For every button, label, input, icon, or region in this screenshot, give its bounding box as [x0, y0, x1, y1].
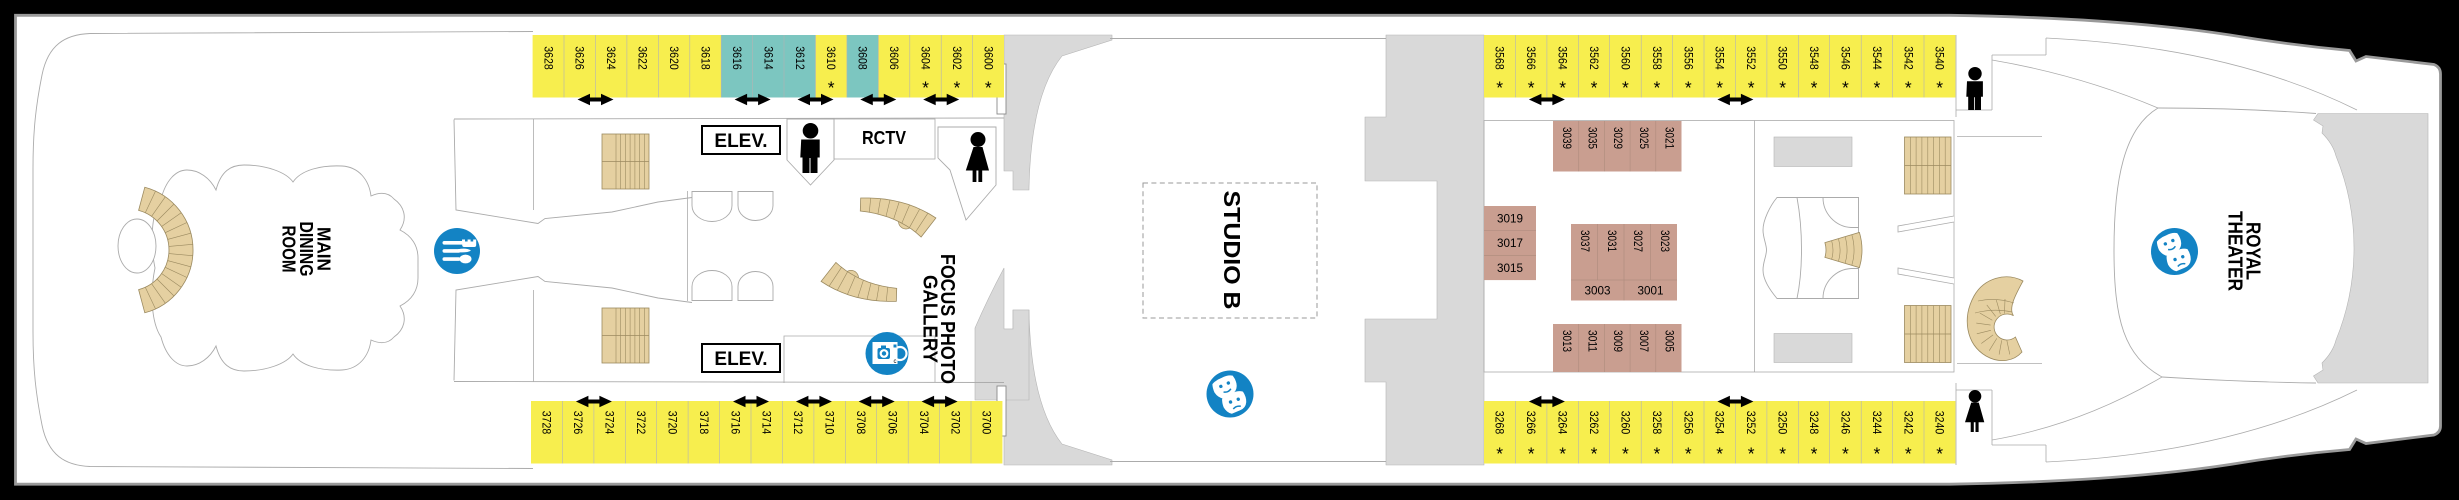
- svg-text:3706: 3706: [885, 411, 899, 435]
- svg-text:3618: 3618: [699, 46, 713, 70]
- svg-text:3610: 3610: [824, 46, 838, 70]
- svg-text:3025: 3025: [1637, 127, 1649, 149]
- svg-text:*: *: [1842, 78, 1849, 98]
- svg-text:*: *: [985, 78, 992, 98]
- svg-text:3021: 3021: [1663, 127, 1675, 149]
- svg-text:3712: 3712: [791, 411, 805, 435]
- svg-text:3250: 3250: [1776, 411, 1790, 435]
- svg-text:3614: 3614: [761, 46, 775, 70]
- svg-text:3029: 3029: [1611, 127, 1623, 149]
- svg-text:3568: 3568: [1493, 46, 1507, 70]
- svg-text:3254: 3254: [1713, 411, 1727, 435]
- svg-text:3252: 3252: [1744, 411, 1758, 435]
- svg-text:*: *: [1559, 444, 1566, 464]
- svg-text:ROOM: ROOM: [279, 226, 300, 273]
- svg-text:*: *: [1653, 444, 1660, 464]
- svg-text:3560: 3560: [1618, 46, 1632, 70]
- svg-text:3702: 3702: [948, 411, 962, 435]
- svg-text:3562: 3562: [1587, 46, 1601, 70]
- svg-text:3017: 3017: [1497, 236, 1523, 250]
- svg-text:*: *: [1779, 78, 1786, 98]
- svg-text:ELEV.: ELEV.: [714, 349, 767, 370]
- svg-text:*: *: [1873, 444, 1880, 464]
- svg-text:3031: 3031: [1605, 230, 1617, 252]
- svg-text:*: *: [922, 78, 929, 98]
- svg-text:3608: 3608: [856, 46, 870, 70]
- svg-text:3626: 3626: [573, 46, 587, 70]
- svg-text:3624: 3624: [604, 46, 618, 70]
- svg-text:3718: 3718: [697, 411, 711, 435]
- svg-text:3005: 3005: [1663, 330, 1675, 352]
- svg-text:3716: 3716: [728, 411, 742, 435]
- svg-text:3558: 3558: [1650, 46, 1664, 70]
- svg-text:*: *: [1496, 444, 1503, 464]
- svg-text:*: *: [1716, 78, 1723, 98]
- svg-text:*: *: [1842, 444, 1849, 464]
- svg-text:3708: 3708: [854, 411, 868, 435]
- svg-text:*: *: [1811, 78, 1818, 98]
- svg-text:3710: 3710: [823, 411, 837, 435]
- svg-text:3001: 3001: [1638, 283, 1664, 297]
- svg-text:3019: 3019: [1497, 211, 1523, 225]
- svg-text:3035: 3035: [1586, 127, 1598, 149]
- svg-text:*: *: [1936, 444, 1943, 464]
- svg-text:3039: 3039: [1560, 127, 1572, 149]
- svg-text:*: *: [1873, 78, 1880, 98]
- svg-text:3015: 3015: [1497, 261, 1523, 275]
- svg-text:3007: 3007: [1637, 330, 1649, 352]
- svg-text:*: *: [1905, 78, 1912, 98]
- svg-text:3256: 3256: [1681, 411, 1695, 435]
- svg-text:3724: 3724: [603, 411, 617, 435]
- svg-text:3037: 3037: [1578, 230, 1590, 252]
- svg-text:3003: 3003: [1585, 283, 1611, 297]
- svg-text:3704: 3704: [917, 411, 931, 435]
- svg-text:*: *: [953, 78, 960, 98]
- svg-text:3011: 3011: [1586, 330, 1598, 352]
- svg-text:*: *: [1685, 444, 1692, 464]
- svg-text:*: *: [1622, 78, 1629, 98]
- svg-text:3600: 3600: [981, 46, 995, 70]
- svg-text:3268: 3268: [1493, 411, 1507, 435]
- svg-text:3612: 3612: [793, 46, 807, 70]
- svg-text:3566: 3566: [1524, 46, 1538, 70]
- svg-text:3620: 3620: [667, 46, 681, 70]
- svg-text:3266: 3266: [1524, 411, 1538, 435]
- svg-text:*: *: [1748, 78, 1755, 98]
- svg-text:3009: 3009: [1611, 330, 1623, 352]
- svg-text:3604: 3604: [919, 46, 933, 70]
- svg-text:3262: 3262: [1587, 411, 1601, 435]
- svg-text:3726: 3726: [571, 411, 585, 435]
- svg-text:3720: 3720: [665, 411, 679, 435]
- svg-text:3013: 3013: [1560, 330, 1572, 352]
- svg-text:3264: 3264: [1556, 411, 1570, 435]
- svg-text:STUDIO B: STUDIO B: [1219, 191, 1245, 310]
- svg-text:3027: 3027: [1631, 230, 1643, 252]
- svg-text:3258: 3258: [1650, 411, 1664, 435]
- svg-text:GALLERY: GALLERY: [919, 275, 941, 364]
- svg-text:*: *: [1528, 78, 1535, 98]
- svg-text:3246: 3246: [1838, 411, 1852, 435]
- svg-text:*: *: [1779, 444, 1786, 464]
- svg-text:THEATER: THEATER: [2224, 211, 2246, 291]
- svg-text:*: *: [1622, 444, 1629, 464]
- svg-text:3602: 3602: [950, 46, 964, 70]
- svg-text:*: *: [828, 78, 835, 98]
- svg-text:3552: 3552: [1744, 46, 1758, 70]
- svg-text:3616: 3616: [730, 46, 744, 70]
- svg-text:*: *: [1811, 444, 1818, 464]
- svg-text:3544: 3544: [1870, 46, 1884, 70]
- svg-text:3714: 3714: [760, 411, 774, 435]
- svg-text:3248: 3248: [1807, 411, 1821, 435]
- svg-text:*: *: [1528, 444, 1535, 464]
- svg-text:3556: 3556: [1681, 46, 1695, 70]
- svg-text:3550: 3550: [1776, 46, 1790, 70]
- svg-text:*: *: [1559, 78, 1566, 98]
- svg-text:*: *: [1591, 78, 1598, 98]
- svg-text:3242: 3242: [1901, 411, 1915, 435]
- svg-text:3546: 3546: [1838, 46, 1852, 70]
- svg-text:3722: 3722: [634, 411, 648, 435]
- svg-text:*: *: [1653, 78, 1660, 98]
- svg-text:3554: 3554: [1713, 46, 1727, 70]
- svg-text:*: *: [1591, 444, 1598, 464]
- svg-text:3542: 3542: [1901, 46, 1915, 70]
- svg-text:3023: 3023: [1658, 230, 1670, 252]
- svg-text:c: c: [894, 359, 897, 365]
- svg-text:3628: 3628: [541, 46, 555, 70]
- svg-text:*: *: [1905, 444, 1912, 464]
- svg-text:3728: 3728: [540, 411, 554, 435]
- svg-text:*: *: [1716, 444, 1723, 464]
- svg-text:3548: 3548: [1807, 46, 1821, 70]
- svg-text:ELEV.: ELEV.: [714, 131, 767, 152]
- svg-text:*: *: [1496, 78, 1503, 98]
- svg-text:*: *: [1748, 444, 1755, 464]
- svg-text:3622: 3622: [636, 46, 650, 70]
- svg-text:*: *: [1936, 78, 1943, 98]
- svg-text:3240: 3240: [1933, 411, 1947, 435]
- svg-text:3606: 3606: [887, 46, 901, 70]
- svg-text:3540: 3540: [1933, 46, 1947, 70]
- svg-text:3244: 3244: [1870, 411, 1884, 435]
- svg-text:3564: 3564: [1556, 46, 1570, 70]
- svg-text:3700: 3700: [980, 411, 994, 435]
- svg-text:RCTV: RCTV: [862, 128, 906, 148]
- svg-text:*: *: [1685, 78, 1692, 98]
- svg-text:3260: 3260: [1618, 411, 1632, 435]
